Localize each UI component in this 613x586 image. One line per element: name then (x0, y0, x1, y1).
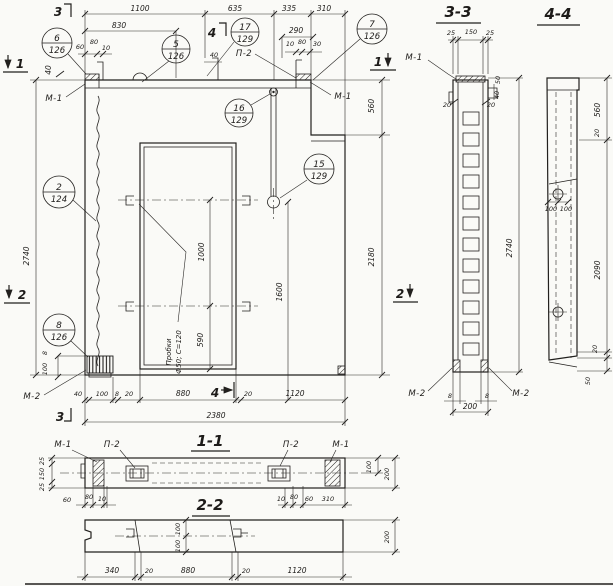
dim-25-s11b: 25 (38, 483, 46, 491)
cut-label: 4 (207, 26, 216, 40)
balloon-sheet: 129 (237, 35, 253, 45)
dim-2740-s33: 2740 (505, 238, 514, 257)
cut-3-top: 3 (54, 4, 71, 19)
cut-4-top: 4 (207, 23, 226, 40)
cut-2-right: 2 (393, 284, 418, 302)
balloon-sheet: 124 (51, 195, 67, 205)
dim-150-s11: 150 (38, 468, 46, 480)
p2-channel-left (126, 466, 148, 481)
dim-2740-left: 2740 (22, 246, 31, 265)
dim-20-s44b: 20 (591, 345, 599, 353)
dim-hole-100b: 100 (560, 205, 572, 213)
section-2-2: 2-2 100 100 340 20 880 20 1120 200 (77, 496, 400, 581)
dim-340: 340 (105, 566, 120, 575)
embed-plate-m2-bottomleft (87, 356, 113, 377)
balloon-16-129: 16 129 (225, 94, 270, 127)
note-leader (139, 204, 186, 322)
dim-200: 200 (463, 402, 478, 411)
p2-channel-right (268, 466, 290, 481)
dim-60: 60 (76, 43, 84, 51)
cut-4-bottom: 4 (210, 382, 234, 400)
label-m2-s33-left: М-2 (408, 389, 425, 399)
label-m1-s11-right: М-1 (332, 440, 349, 450)
dim-60-s11: 60 (63, 496, 71, 504)
dim-40-pin: 40 (210, 51, 218, 59)
dim-200-s22: 200 (383, 531, 391, 543)
dim-10b: 10 (286, 40, 294, 48)
dim-20l: 20 (443, 101, 451, 109)
section-4-4: 4-4 100 100 560 20 2090 20 50 (537, 5, 612, 385)
dim-100-s22a: 100 (174, 523, 182, 535)
plug-note-line2: Ф50; С=120 (175, 330, 183, 374)
dim-80: 80 (90, 38, 98, 46)
cut-label: 3 (54, 5, 62, 19)
dim-hole-100a: 100 (545, 205, 557, 213)
cut-1-left: 1 (3, 55, 28, 72)
balloon-8-126: 8 126 (43, 314, 88, 357)
balloon-sheet: 126 (364, 32, 381, 42)
dim-200-s11: 200 (383, 468, 391, 480)
plug-marks (118, 196, 258, 311)
cut-label: 3 (56, 410, 64, 424)
dim-b100: 100 (96, 390, 108, 398)
dim-880-s22: 880 (181, 566, 196, 575)
balloon-num: 17 (239, 23, 251, 33)
dim-30: 30 (313, 40, 321, 48)
label-m1-s11-left: М-1 (54, 440, 71, 450)
dim-100-s22b: 100 (174, 540, 182, 552)
dim-10-s11: 10 (98, 495, 106, 503)
dim-60-s11r: 60 (305, 495, 313, 503)
panel-elevation-view: Пробки Ф50; С=120 (85, 58, 345, 377)
balloon-sheet: 126 (168, 52, 185, 62)
label-p2-top: П-2 (236, 49, 252, 59)
dim-1600: 1600 (275, 282, 284, 301)
balloon-sheet: 126 (49, 46, 66, 56)
drawing-sheet: Пробки Ф50; С=120 1100 635 335 310 830 2… (0, 0, 613, 586)
embed-plate-m1-topleft (85, 74, 99, 88)
section-title: 3-3 (444, 3, 471, 21)
dim-150: 150 (465, 28, 477, 36)
dim-80-s11: 80 (85, 493, 93, 501)
dim-20-s22a: 20 (145, 567, 153, 575)
top-pins (97, 58, 302, 80)
balloon-num: 16 (233, 104, 245, 114)
dim-b1120: 1120 (285, 389, 304, 398)
cut-2-left: 2 (4, 285, 30, 303)
dim-100-s11: 100 (365, 461, 373, 473)
dim-1120-s22: 1120 (287, 566, 306, 575)
panel-working-drawing: Пробки Ф50; С=120 1100 635 335 310 830 2… (0, 0, 613, 586)
dim-8a: 8 (448, 392, 452, 400)
label-m2-left: М-2 (23, 392, 40, 402)
dim-40-left: 40 (44, 65, 53, 75)
lifting-recess (133, 73, 147, 80)
cut-3-bottom: 3 (56, 408, 71, 424)
dim-b20b: 20 (244, 390, 252, 398)
dim-b880: 880 (176, 389, 191, 398)
section-3-3: 3-3 25 150 25 50 40 (405, 3, 529, 416)
section-title: 2-2 (196, 496, 223, 514)
balloon-num: 2 (56, 183, 62, 193)
cut-label: 2 (18, 288, 26, 302)
main-view-dimensions: 1100 635 335 310 830 290 60 80 10 40 10 … (22, 4, 390, 426)
label-p2-s11-right: П-2 (283, 440, 299, 450)
section-cut-markers: 1 1 2 2 3 3 4 (3, 4, 418, 424)
rough-edge (97, 96, 99, 366)
dim-2090: 2090 (593, 260, 602, 279)
dim-635: 635 (228, 4, 243, 13)
dim-25b: 25 (486, 29, 494, 37)
dim-590: 590 (196, 333, 205, 348)
dim-20-s22b: 20 (242, 567, 250, 575)
dim-310: 310 (317, 4, 332, 13)
label-m2-s33-right: М-2 (512, 389, 529, 399)
balloon-num: 7 (369, 20, 375, 30)
dim-830: 830 (112, 21, 127, 30)
dim-2180: 2180 (367, 247, 376, 266)
balloon-num: 8 (56, 321, 62, 331)
balloon-sheet: 129 (231, 116, 247, 126)
label-m1-left: М-1 (45, 94, 62, 104)
dim-20r: 20 (487, 101, 495, 109)
dim-50: 50 (494, 76, 502, 84)
dim-8-left: 8 (41, 351, 49, 355)
rod-and-plug (268, 88, 280, 222)
dim-1000: 1000 (197, 242, 206, 261)
dim-560-s44: 560 (593, 103, 602, 118)
dim-50-s44: 50 (584, 377, 592, 385)
cut-1-right: 1 (370, 53, 396, 70)
dim-310-s11: 310 (322, 495, 334, 503)
callout-balloons: 6 126 5 126 17 129 7 126 16 129 (42, 14, 387, 357)
dim-335: 335 (282, 4, 297, 13)
dim-b8: 8 (115, 390, 119, 398)
dim-80-s11r: 80 (290, 493, 298, 501)
door-opening (140, 143, 236, 369)
label-m1-s33: М-1 (405, 53, 422, 63)
label-m1-right: М-1 (334, 92, 351, 102)
cut-label: 1 (374, 55, 382, 69)
dim-560: 560 (367, 99, 376, 114)
balloon-15-129: 15 129 (280, 154, 334, 198)
dim-290: 290 (289, 26, 304, 35)
plug-note-line1: Пробки (165, 338, 173, 366)
dim-1100: 1100 (130, 4, 149, 13)
dim-10: 10 (102, 44, 110, 52)
label-p2-s11-left: П-2 (104, 440, 120, 450)
cut-label: 4 (210, 386, 219, 400)
balloon-sheet: 129 (311, 172, 327, 182)
section-title: 4-4 (543, 5, 571, 23)
dim-10-s11r: 10 (277, 495, 285, 503)
balloon-num: 15 (313, 160, 325, 170)
dim-8b: 8 (485, 392, 489, 400)
dim-80b: 80 (298, 38, 306, 46)
dim-25a: 25 (447, 29, 455, 37)
hollow-core-voids (463, 112, 479, 355)
cut-label: 1 (16, 57, 24, 71)
section-title: 1-1 (196, 432, 223, 450)
balloon-num: 6 (54, 34, 60, 44)
cut-label: 2 (396, 287, 404, 301)
dim-b20a: 20 (125, 390, 133, 398)
dim-25-s11a: 25 (38, 457, 46, 465)
balloon-num: 5 (173, 40, 179, 50)
balloon-sheet: 126 (51, 333, 68, 343)
dim-20-s44a: 20 (593, 129, 601, 137)
embed-plate-m2-bottomright (338, 366, 345, 374)
balloon-2-124: 2 124 (43, 176, 96, 221)
balloon-5-126: 5 126 (142, 35, 190, 82)
embed-plate-m1-topright (296, 74, 311, 88)
dim-b40: 40 (74, 390, 82, 398)
dim-100-left: 100 (41, 363, 49, 375)
dim-2380: 2380 (206, 411, 225, 420)
